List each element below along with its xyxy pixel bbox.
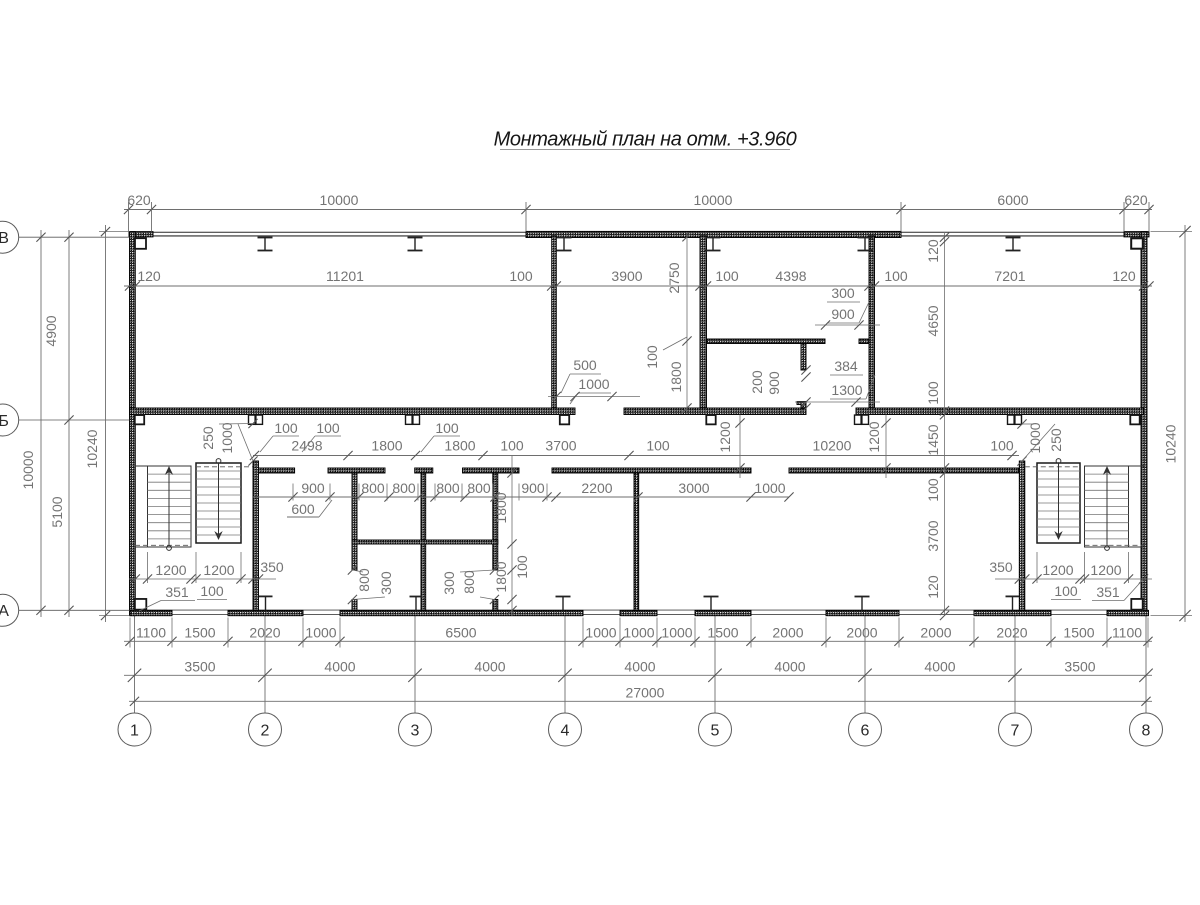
svg-text:6500: 6500 xyxy=(445,624,476,640)
svg-text:350: 350 xyxy=(989,559,1013,575)
svg-text:120: 120 xyxy=(925,239,941,263)
svg-text:250: 250 xyxy=(1048,428,1064,452)
svg-text:1450: 1450 xyxy=(925,424,941,455)
svg-text:5: 5 xyxy=(711,722,720,739)
svg-text:1500: 1500 xyxy=(1063,624,1094,640)
svg-text:10240: 10240 xyxy=(1163,424,1179,463)
svg-text:Монтажный план на отм. +3.960: Монтажный план на отм. +3.960 xyxy=(494,129,797,151)
svg-text:800: 800 xyxy=(461,570,477,594)
svg-text:800: 800 xyxy=(467,480,491,496)
svg-text:1000: 1000 xyxy=(219,422,235,453)
svg-text:100: 100 xyxy=(646,438,670,454)
svg-text:800: 800 xyxy=(356,568,372,592)
svg-text:3500: 3500 xyxy=(1064,658,1095,674)
svg-text:4000: 4000 xyxy=(474,658,505,674)
svg-text:2750: 2750 xyxy=(666,262,682,293)
svg-text:100: 100 xyxy=(884,268,908,284)
svg-text:1000: 1000 xyxy=(578,376,609,392)
svg-text:300: 300 xyxy=(831,285,855,301)
svg-text:4000: 4000 xyxy=(324,658,355,674)
svg-text:351: 351 xyxy=(1096,584,1120,600)
svg-text:300: 300 xyxy=(441,571,457,595)
svg-text:10240: 10240 xyxy=(84,429,100,468)
svg-text:100: 100 xyxy=(925,478,941,502)
svg-text:100: 100 xyxy=(200,583,224,599)
svg-text:120: 120 xyxy=(1112,268,1136,284)
svg-text:100: 100 xyxy=(435,420,459,436)
svg-text:6: 6 xyxy=(861,722,870,739)
svg-text:1100: 1100 xyxy=(136,624,166,640)
svg-text:1200: 1200 xyxy=(203,562,234,578)
svg-text:1800: 1800 xyxy=(668,361,684,392)
svg-text:2000: 2000 xyxy=(920,624,951,640)
svg-text:1200: 1200 xyxy=(155,562,186,578)
svg-text:1200: 1200 xyxy=(1090,562,1121,578)
svg-text:6000: 6000 xyxy=(997,192,1028,208)
svg-text:800: 800 xyxy=(436,480,460,496)
svg-text:8: 8 xyxy=(1142,722,1151,739)
svg-text:2200: 2200 xyxy=(581,480,612,496)
svg-text:3700: 3700 xyxy=(545,438,576,454)
svg-text:7: 7 xyxy=(1011,722,1020,739)
svg-text:100: 100 xyxy=(1054,583,1078,599)
svg-text:4650: 4650 xyxy=(925,305,941,336)
svg-text:1300: 1300 xyxy=(831,382,862,398)
svg-text:620: 620 xyxy=(127,192,151,208)
svg-text:100: 100 xyxy=(514,555,530,579)
svg-text:100: 100 xyxy=(715,268,739,284)
svg-text:2020: 2020 xyxy=(996,624,1027,640)
svg-text:1100: 1100 xyxy=(1112,624,1142,640)
svg-text:В: В xyxy=(0,230,9,247)
svg-text:3700: 3700 xyxy=(925,520,941,551)
svg-text:100: 100 xyxy=(509,268,533,284)
svg-text:384: 384 xyxy=(834,358,858,374)
svg-text:350: 350 xyxy=(260,559,284,575)
svg-text:800: 800 xyxy=(392,480,416,496)
svg-text:600: 600 xyxy=(291,501,315,517)
svg-text:100: 100 xyxy=(644,345,660,369)
svg-text:100: 100 xyxy=(990,438,1014,454)
svg-text:10000: 10000 xyxy=(20,450,36,489)
svg-text:100: 100 xyxy=(316,420,340,436)
svg-text:1800: 1800 xyxy=(444,438,475,454)
svg-text:3: 3 xyxy=(411,722,420,739)
svg-text:10200: 10200 xyxy=(813,438,852,454)
svg-text:2: 2 xyxy=(261,722,270,739)
svg-text:1000: 1000 xyxy=(585,624,616,640)
svg-text:900: 900 xyxy=(301,480,325,496)
svg-text:1000: 1000 xyxy=(754,480,785,496)
svg-text:7201: 7201 xyxy=(994,268,1025,284)
svg-text:100: 100 xyxy=(500,438,524,454)
svg-text:3000: 3000 xyxy=(678,480,709,496)
svg-text:1500: 1500 xyxy=(707,624,738,640)
svg-text:1000: 1000 xyxy=(305,624,336,640)
svg-text:1800: 1800 xyxy=(371,438,402,454)
svg-text:4000: 4000 xyxy=(624,658,655,674)
svg-text:1800: 1800 xyxy=(493,492,509,523)
svg-text:200: 200 xyxy=(749,370,765,394)
svg-text:900: 900 xyxy=(521,480,545,496)
svg-text:1000: 1000 xyxy=(623,624,654,640)
svg-text:5100: 5100 xyxy=(49,496,65,527)
svg-text:100: 100 xyxy=(925,381,941,405)
svg-text:900: 900 xyxy=(766,371,782,395)
svg-text:А: А xyxy=(0,603,9,620)
svg-text:620: 620 xyxy=(1124,192,1148,208)
svg-text:10000: 10000 xyxy=(320,192,359,208)
svg-text:120: 120 xyxy=(925,575,941,599)
svg-text:2020: 2020 xyxy=(249,624,280,640)
svg-text:300: 300 xyxy=(378,571,394,595)
svg-text:3500: 3500 xyxy=(184,658,215,674)
svg-text:1: 1 xyxy=(130,722,139,739)
svg-text:4000: 4000 xyxy=(774,658,805,674)
svg-text:351: 351 xyxy=(165,584,189,600)
svg-text:900: 900 xyxy=(831,306,855,322)
svg-text:1200: 1200 xyxy=(717,421,733,452)
svg-text:2000: 2000 xyxy=(846,624,877,640)
svg-text:500: 500 xyxy=(573,357,597,373)
svg-text:10000: 10000 xyxy=(694,192,733,208)
svg-text:100: 100 xyxy=(274,420,298,436)
svg-text:3900: 3900 xyxy=(611,268,642,284)
svg-text:1800: 1800 xyxy=(493,561,509,592)
svg-text:1000: 1000 xyxy=(661,624,692,640)
svg-text:Б: Б xyxy=(0,413,9,430)
svg-text:250: 250 xyxy=(200,426,216,450)
svg-text:1000: 1000 xyxy=(1027,422,1043,453)
svg-text:4900: 4900 xyxy=(43,315,59,346)
svg-text:1200: 1200 xyxy=(866,421,882,452)
svg-text:4: 4 xyxy=(561,722,570,739)
svg-text:2498: 2498 xyxy=(291,438,322,454)
svg-text:4000: 4000 xyxy=(924,658,955,674)
svg-text:800: 800 xyxy=(361,480,385,496)
svg-text:11201: 11201 xyxy=(326,268,364,284)
svg-text:1200: 1200 xyxy=(1042,562,1073,578)
svg-text:120: 120 xyxy=(137,268,161,284)
svg-text:27000: 27000 xyxy=(626,684,665,700)
svg-text:4398: 4398 xyxy=(775,268,806,284)
svg-text:2000: 2000 xyxy=(772,624,803,640)
svg-text:1500: 1500 xyxy=(184,624,215,640)
